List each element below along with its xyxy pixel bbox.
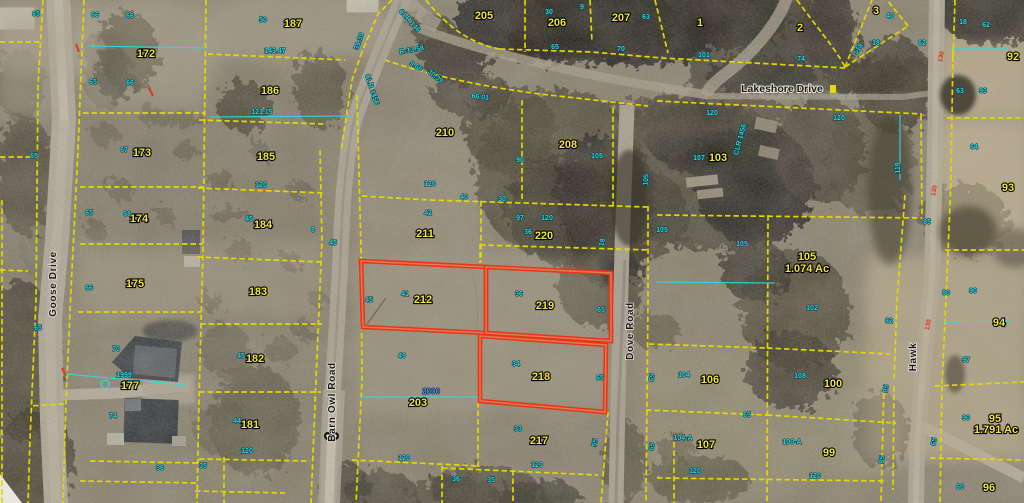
svg-text:208: 208: [559, 139, 577, 151]
svg-text:65: 65: [85, 210, 93, 217]
svg-text:65: 65: [30, 153, 38, 160]
svg-text:64: 64: [970, 144, 978, 151]
svg-text:Goose Drive: Goose Drive: [48, 251, 59, 317]
svg-text:Dove Road: Dove Road: [625, 302, 636, 360]
svg-text:120: 120: [833, 115, 845, 122]
svg-text:121.15: 121.15: [251, 109, 273, 116]
svg-text:120: 120: [241, 448, 253, 455]
svg-text:105: 105: [643, 174, 651, 186]
svg-text:105: 105: [798, 251, 816, 263]
svg-text:18: 18: [959, 19, 967, 26]
svg-text:1.074 Ac: 1.074 Ac: [785, 263, 829, 275]
svg-text:65: 65: [34, 325, 42, 332]
svg-text:65: 65: [930, 437, 938, 446]
svg-text:66: 66: [85, 285, 93, 292]
svg-text:184: 184: [254, 219, 273, 231]
svg-text:45: 45: [237, 353, 245, 360]
svg-text:220: 220: [535, 230, 553, 242]
svg-text:45: 45: [245, 216, 253, 223]
svg-text:62: 62: [918, 40, 926, 47]
svg-text:185: 185: [257, 151, 275, 163]
svg-text:62: 62: [982, 22, 990, 29]
svg-text:67: 67: [120, 147, 128, 154]
svg-text:66: 66: [91, 12, 99, 19]
svg-text:90: 90: [962, 415, 970, 422]
svg-text:85: 85: [878, 455, 886, 464]
svg-text:207: 207: [612, 12, 630, 24]
svg-text:120: 120: [398, 455, 410, 462]
svg-text:50: 50: [259, 17, 267, 24]
svg-text:104: 104: [678, 372, 690, 379]
svg-text:3: 3: [873, 5, 879, 17]
svg-text:35: 35: [487, 477, 495, 484]
svg-text:45: 45: [365, 297, 373, 304]
svg-text:119: 119: [895, 162, 902, 173]
svg-text:45: 45: [329, 240, 337, 247]
svg-text:2: 2: [797, 22, 803, 34]
svg-text:Barn Owl Road: Barn Owl Road: [327, 362, 338, 441]
svg-text:102: 102: [806, 305, 818, 312]
svg-text:143.47: 143.47: [264, 48, 286, 55]
svg-text:65: 65: [596, 375, 604, 382]
svg-text:92: 92: [1007, 51, 1019, 63]
svg-text:183: 183: [249, 286, 267, 298]
svg-text:101: 101: [698, 52, 710, 59]
svg-text:96: 96: [983, 482, 995, 494]
svg-text:65: 65: [89, 79, 97, 86]
svg-text:85: 85: [923, 219, 931, 226]
svg-text:8: 8: [311, 227, 315, 234]
svg-text:212: 212: [414, 294, 432, 306]
svg-text:33: 33: [514, 426, 522, 433]
svg-text:103: 103: [709, 152, 727, 164]
svg-text:80: 80: [942, 290, 950, 297]
svg-text:182: 182: [246, 353, 264, 365]
svg-text:1.791 Ac: 1.791 Ac: [974, 424, 1018, 436]
svg-text:219: 219: [536, 300, 554, 312]
svg-text:172: 172: [137, 48, 155, 60]
svg-text:218: 218: [532, 371, 550, 383]
svg-text:65: 65: [551, 44, 559, 51]
svg-text:60: 60: [956, 484, 964, 491]
svg-text:120: 120: [541, 215, 553, 222]
svg-text:120: 120: [689, 468, 701, 475]
svg-text:2000: 2000: [422, 387, 440, 396]
svg-text:65: 65: [32, 11, 40, 18]
svg-text:181: 181: [241, 419, 259, 431]
svg-text:65: 65: [648, 442, 656, 451]
svg-text:93: 93: [1002, 182, 1014, 194]
svg-text:63: 63: [956, 88, 964, 95]
svg-text:41: 41: [401, 291, 409, 298]
svg-text:18: 18: [872, 40, 880, 47]
svg-text:90: 90: [969, 288, 977, 295]
svg-text:120: 120: [809, 473, 821, 480]
svg-text:74: 74: [109, 413, 117, 420]
svg-text:30: 30: [498, 196, 506, 203]
svg-text:203: 203: [409, 397, 427, 409]
svg-text:Lakeshore Drive: Lakeshore Drive: [741, 83, 823, 95]
svg-text:107: 107: [697, 439, 715, 451]
svg-text:105: 105: [736, 241, 748, 248]
svg-text:90: 90: [516, 157, 524, 164]
svg-text:30: 30: [545, 9, 553, 16]
svg-text:174: 174: [130, 213, 149, 225]
svg-text:36: 36: [515, 291, 523, 298]
svg-text:100-A: 100-A: [782, 439, 801, 446]
svg-text:68: 68: [123, 211, 131, 218]
svg-text:108: 108: [794, 373, 806, 380]
svg-text:36: 36: [524, 229, 532, 236]
svg-text:100: 100: [824, 378, 842, 390]
svg-text:1999: 1999: [116, 372, 132, 379]
svg-text:173: 173: [133, 147, 151, 159]
svg-text:34: 34: [512, 361, 520, 368]
svg-text:65: 65: [597, 307, 605, 314]
svg-text:65: 65: [648, 373, 656, 382]
svg-text:107: 107: [693, 155, 705, 162]
svg-text:175: 175: [126, 278, 144, 290]
svg-text:70: 70: [617, 46, 625, 53]
svg-text:66: 66: [126, 80, 134, 87]
svg-text:106: 106: [701, 374, 719, 386]
svg-text:97: 97: [962, 357, 970, 364]
svg-text:40: 40: [460, 194, 468, 201]
svg-text:93: 93: [979, 88, 987, 95]
svg-text:44: 44: [233, 418, 241, 425]
svg-text:1: 1: [697, 17, 703, 29]
svg-text:70: 70: [112, 346, 120, 353]
svg-text:74: 74: [797, 56, 805, 63]
svg-text:Hawk: Hawk: [908, 343, 919, 372]
svg-text:63: 63: [642, 14, 650, 21]
svg-text:40: 40: [886, 13, 894, 20]
svg-text:105: 105: [656, 227, 668, 234]
svg-text:97: 97: [516, 215, 524, 222]
svg-text:42: 42: [424, 210, 432, 217]
svg-text:186: 186: [261, 85, 279, 97]
svg-text:65: 65: [743, 412, 751, 419]
svg-text:217: 217: [530, 435, 548, 447]
svg-text:35: 35: [199, 463, 207, 470]
svg-text:82: 82: [885, 318, 893, 325]
svg-text:55: 55: [591, 438, 599, 447]
svg-text:105: 105: [591, 153, 603, 160]
svg-text:120: 120: [706, 110, 718, 117]
svg-text:36: 36: [452, 476, 460, 483]
svg-text:210: 210: [436, 127, 454, 139]
svg-text:177: 177: [121, 380, 139, 392]
svg-text:120: 120: [255, 182, 267, 189]
svg-text:99: 99: [823, 447, 835, 459]
svg-text:206: 206: [548, 17, 566, 29]
svg-text:211: 211: [416, 228, 434, 240]
svg-text:120: 120: [424, 181, 436, 188]
svg-text:85: 85: [882, 384, 890, 393]
svg-text:104-A: 104-A: [673, 435, 692, 442]
svg-text:205: 205: [475, 10, 493, 22]
svg-text:49: 49: [398, 353, 406, 360]
svg-text:120: 120: [531, 462, 543, 469]
svg-text:36: 36: [156, 465, 164, 472]
svg-text:187: 187: [284, 18, 302, 30]
svg-text:94: 94: [993, 317, 1006, 329]
svg-text:66: 66: [126, 13, 134, 20]
svg-text:9: 9: [580, 4, 584, 11]
